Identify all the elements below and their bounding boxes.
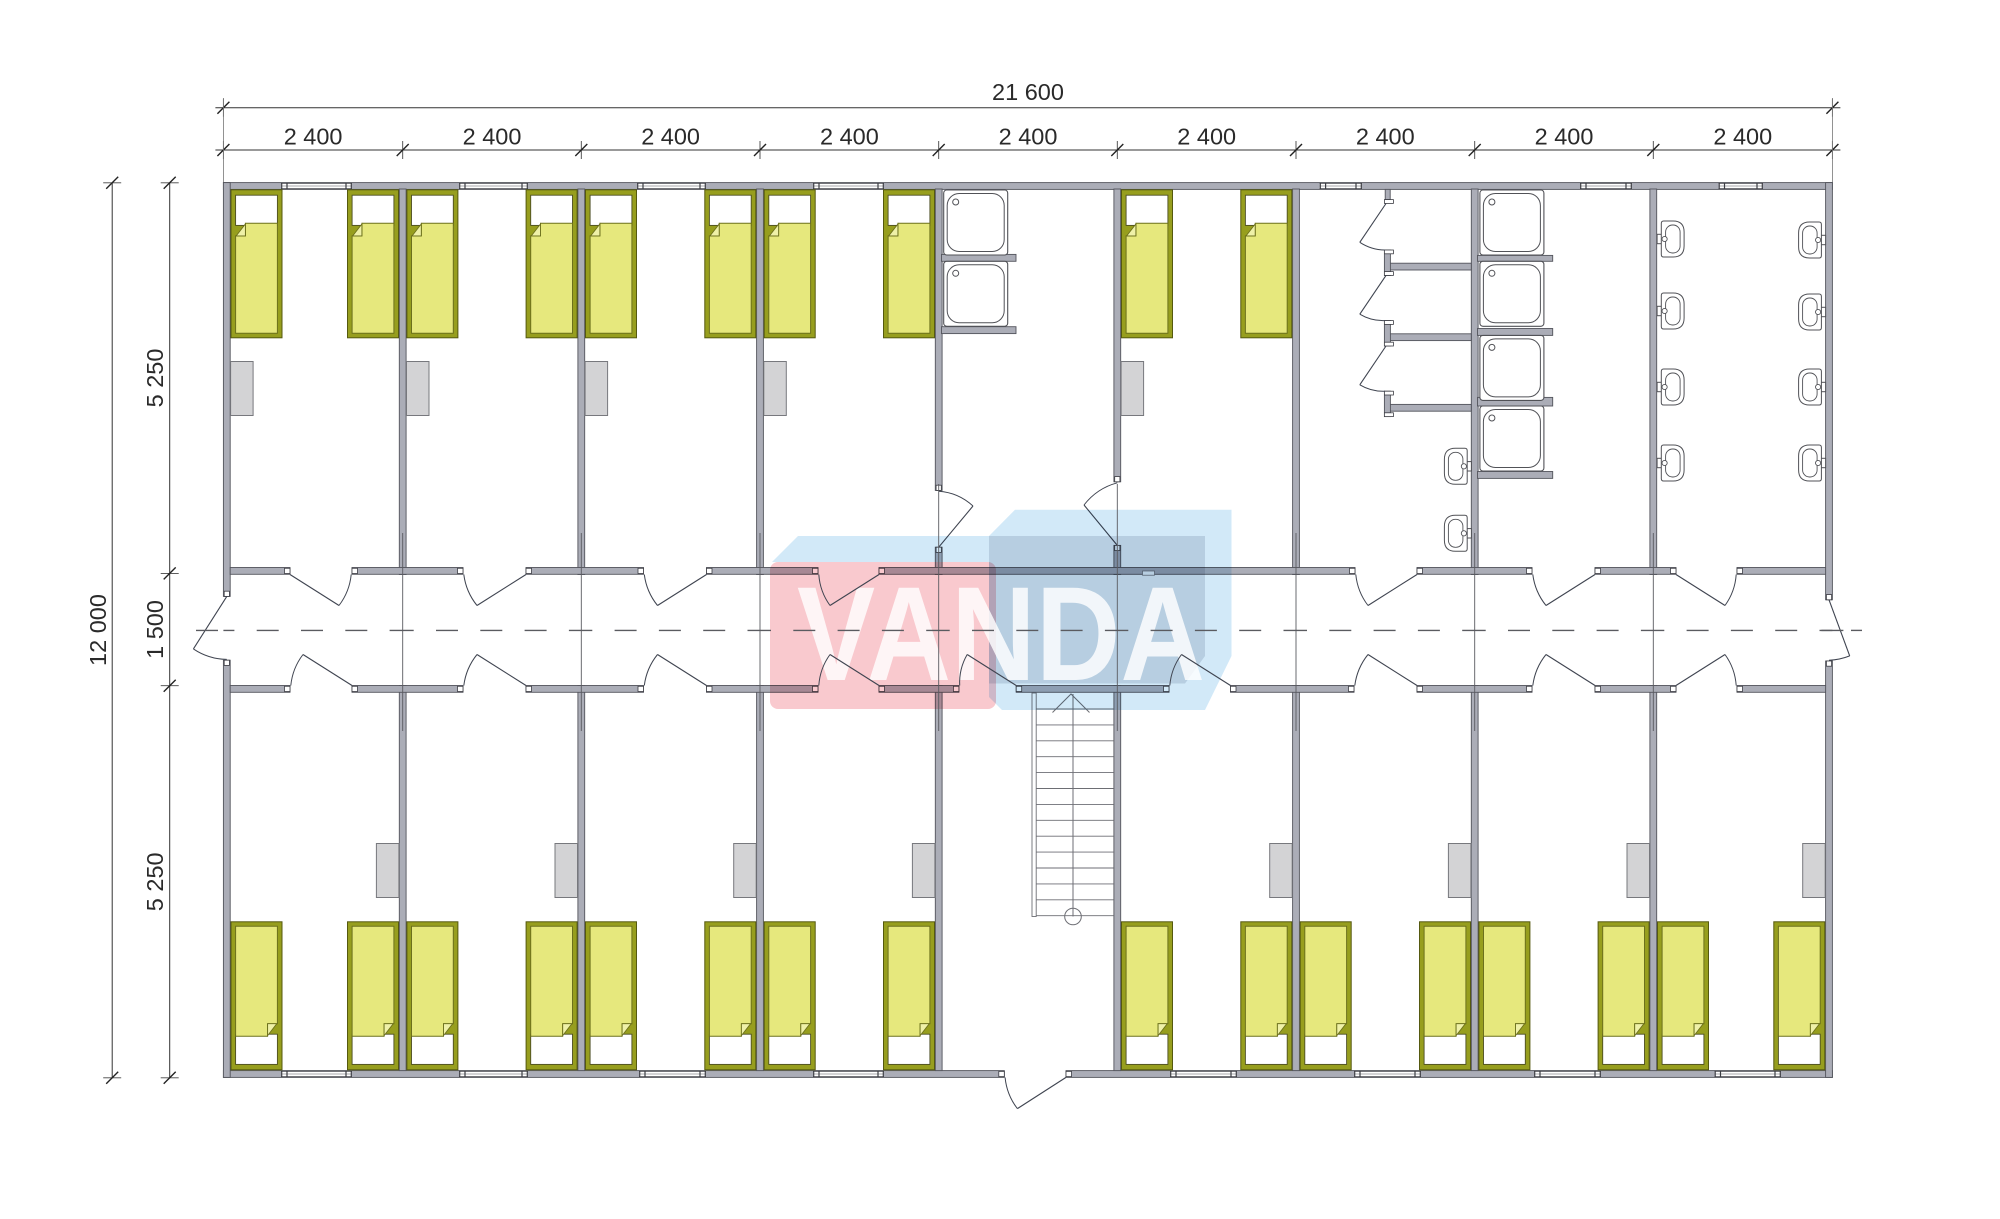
svg-text:2 400: 2 400 — [1356, 124, 1415, 150]
svg-text:2 400: 2 400 — [463, 124, 522, 150]
svg-text:2 400: 2 400 — [284, 124, 343, 150]
svg-text:5 250: 5 250 — [142, 852, 168, 911]
svg-text:21 600: 21 600 — [992, 79, 1064, 105]
svg-text:VANDA: VANDA — [797, 560, 1205, 709]
svg-text:2 400: 2 400 — [999, 124, 1058, 150]
svg-text:5 250: 5 250 — [142, 349, 168, 408]
svg-text:2 400: 2 400 — [1535, 124, 1594, 150]
svg-text:2 400: 2 400 — [1177, 124, 1236, 150]
svg-text:2 400: 2 400 — [1713, 124, 1772, 150]
svg-text:2 400: 2 400 — [641, 124, 700, 150]
svg-text:12 000: 12 000 — [85, 594, 111, 666]
svg-text:2 400: 2 400 — [820, 124, 879, 150]
svg-text:1 500: 1 500 — [142, 600, 168, 659]
